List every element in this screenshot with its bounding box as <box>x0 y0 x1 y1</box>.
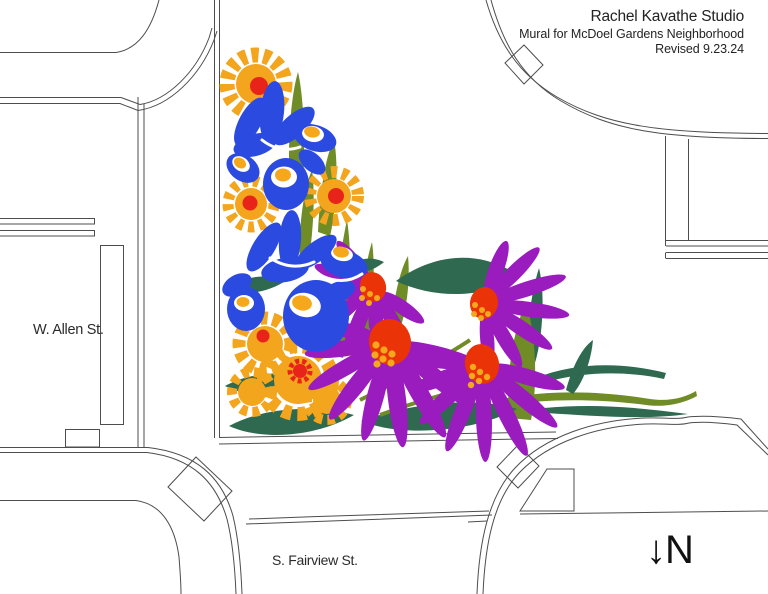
studio-name: Rachel Kavathe Studio <box>519 8 744 27</box>
north-indicator: ↓N <box>646 528 693 573</box>
coreopsis-flower-right <box>310 172 358 220</box>
crosswalk-marker-southeast <box>497 445 539 488</box>
title-block: Rachel Kavathe Studio Mural for McDoel G… <box>519 8 744 57</box>
street-label-w-allen: W. Allen St. <box>33 322 104 338</box>
project-title: Mural for McDoel Gardens Neighborhood <box>519 27 744 42</box>
north-label: N <box>665 528 693 572</box>
mural-artwork <box>218 55 697 462</box>
revision-date: Revised 9.23.24 <box>519 42 744 57</box>
north-arrow-icon: ↓ <box>646 528 665 572</box>
plan-drawing <box>0 0 768 594</box>
street-label-s-fairview: S. Fairview St. <box>272 552 358 568</box>
site-plan-page: Rachel Kavathe Studio Mural for McDoel G… <box>0 0 768 594</box>
